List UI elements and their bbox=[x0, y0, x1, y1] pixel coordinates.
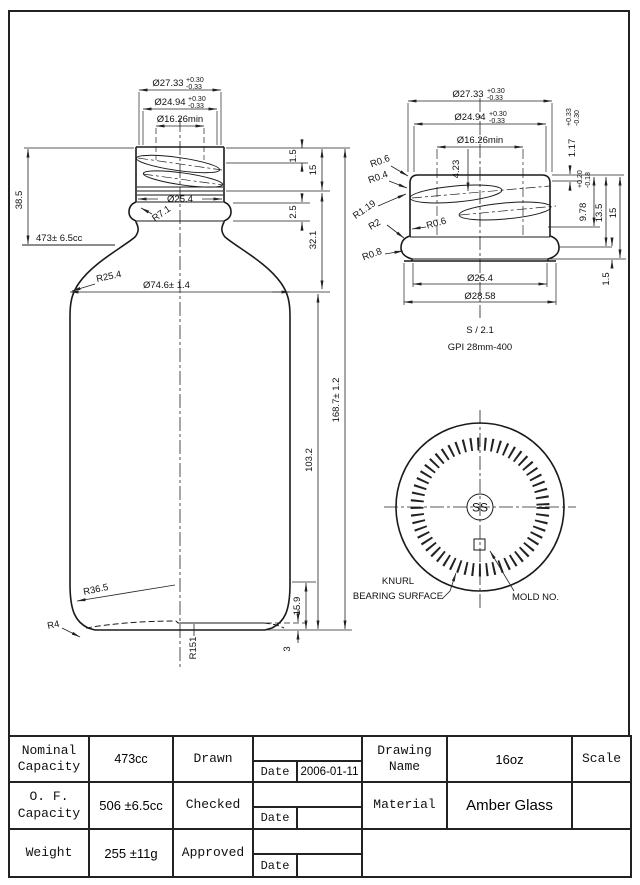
detail-thread-tol-plus: +0.30 bbox=[489, 111, 507, 118]
detail-dim-13-5: 13.5 bbox=[594, 204, 605, 223]
drawing-name-value: 16oz bbox=[448, 737, 573, 783]
nominal-capacity-value: 473cc bbox=[90, 737, 174, 783]
drawing-name-label: DrawingName bbox=[363, 737, 448, 783]
dim-base-radius: R4 bbox=[46, 619, 60, 632]
dim-neck-outer-tol-minus: -0.33 bbox=[186, 84, 202, 91]
title-block-empty-cell bbox=[363, 830, 630, 876]
approved-date-label: Date bbox=[254, 855, 298, 876]
dim-neck-dia: Ø25.4 bbox=[167, 194, 193, 205]
knurl-label-line2: BEARING SURFACE bbox=[353, 591, 443, 602]
detail-extension-lines bbox=[404, 103, 626, 305]
dim-103-2: 103.2 bbox=[304, 448, 315, 472]
detail-neck-dia: Ø25.4 bbox=[467, 273, 493, 284]
approved-date-value bbox=[298, 855, 361, 876]
drawn-signature-area bbox=[254, 737, 361, 762]
detail-bore-dia: Ø16.26min bbox=[457, 135, 503, 146]
mold-number-square bbox=[474, 539, 485, 550]
detail-radius-lip-outer: R0.6 bbox=[369, 153, 392, 170]
weight-label: Weight bbox=[10, 830, 90, 876]
checked-signature-cell: Date bbox=[254, 783, 363, 830]
detail-neck-outer-tol-minus: -0.33 bbox=[487, 95, 503, 102]
fill-level-label: 473± 6.5cc bbox=[36, 233, 83, 244]
dim-neck-outer-tol-plus: +0.30 bbox=[186, 77, 204, 84]
detail-radius-bead-groove: R0.6 bbox=[425, 216, 447, 232]
checked-date-label: Date bbox=[254, 808, 298, 828]
pushup-profile bbox=[86, 621, 284, 628]
detail-bead-dia: Ø28.58 bbox=[464, 291, 495, 302]
detail-neck-outer-dia: Ø27.33 bbox=[452, 89, 483, 100]
dim-thread-tol-minus: -0.33 bbox=[188, 103, 204, 110]
title-block: NominalCapacity 473cc Drawn Date 2006-01… bbox=[8, 735, 632, 878]
engineering-drawing: Ø27.33 +0.30 -0.33 Ø24.94 +0.30 -0.33 Ø1… bbox=[8, 10, 632, 735]
detail-radius-bead-bottom: R0.8 bbox=[361, 246, 384, 263]
dim-thread-dia: Ø24.94 bbox=[154, 97, 185, 108]
scale-value-cell bbox=[573, 783, 630, 830]
detail-thread-tol-minus: -0.33 bbox=[489, 118, 505, 125]
approved-label: Approved bbox=[174, 830, 254, 876]
dim-bore-dia: Ø16.26min bbox=[157, 114, 203, 125]
of-capacity-label: O. F.Capacity bbox=[10, 783, 90, 830]
detail-dim-4-23: 4.23 bbox=[451, 160, 462, 179]
neck-detail-view: Ø27.33 +0.30 -0.33 Ø24.94 +0.30 -0.33 Ø1… bbox=[351, 88, 626, 353]
detail-neck-outer-tol-plus: +0.30 bbox=[487, 88, 505, 95]
extension-lines bbox=[24, 92, 352, 630]
knurl-label-line1: KNURL bbox=[382, 576, 414, 587]
bottle-front-view: Ø27.33 +0.30 -0.33 Ø24.94 +0.30 -0.33 Ø1… bbox=[14, 77, 352, 668]
checked-date-value bbox=[298, 808, 361, 828]
detail-radius-bead-top: R2 bbox=[367, 217, 383, 233]
dim-pushup-radius: R151 bbox=[188, 637, 199, 660]
dim-1-5: 1.5 bbox=[288, 149, 299, 162]
material-value: Amber Glass bbox=[448, 783, 573, 830]
detail-dim-15: 15 bbox=[608, 208, 619, 219]
mold-number-label: MOLD NO. bbox=[512, 592, 559, 603]
detail-radius-lip-inner: R0.4 bbox=[367, 169, 390, 186]
knurl-leader bbox=[442, 573, 456, 599]
approved-signature-cell: Date bbox=[254, 830, 363, 876]
bottom-view: SS KNURL BEARING SURFACE MOLD NO. bbox=[353, 410, 576, 610]
drawn-signature-cell: Date 2006-01-11 bbox=[254, 737, 363, 783]
dim-2-5: 2.5 bbox=[288, 205, 299, 218]
detail-dim-1-17: 1.17 bbox=[567, 139, 578, 158]
detail-dim-9-78-tol-minus: -0.18 bbox=[585, 172, 592, 188]
dim-3: 3 bbox=[282, 646, 293, 651]
of-capacity-value: 506 ±6.5cc bbox=[90, 783, 174, 830]
checked-label: Checked bbox=[174, 783, 254, 830]
dim-32-1: 32.1 bbox=[308, 231, 319, 250]
detail-scale-note: S / 2.1 bbox=[466, 325, 493, 336]
approved-signature-area bbox=[254, 830, 361, 855]
dim-15: 15 bbox=[308, 165, 319, 176]
dim-neck-outer-dia: Ø27.33 bbox=[152, 78, 183, 89]
scale-label: Scale bbox=[573, 737, 630, 783]
dim-heel-radius: R36.5 bbox=[82, 582, 109, 598]
drawn-date-label: Date bbox=[254, 762, 298, 781]
dim-thread-tol-plus: +0.30 bbox=[188, 96, 206, 103]
drawn-label: Drawn bbox=[174, 737, 254, 783]
drawn-date-value: 2006-01-11 bbox=[298, 762, 361, 781]
weight-value: 255 ±11g bbox=[90, 830, 174, 876]
finish-spec-label: GPI 28mm-400 bbox=[448, 342, 512, 353]
drawing-sheet: Ø27.33 +0.30 -0.33 Ø24.94 +0.30 -0.33 Ø1… bbox=[0, 0, 640, 885]
nominal-capacity-label: NominalCapacity bbox=[10, 737, 90, 783]
checked-signature-area bbox=[254, 783, 361, 808]
thread-profile bbox=[136, 152, 224, 191]
detail-thread-profile bbox=[409, 182, 556, 223]
detail-thread-dia: Ø24.94 bbox=[454, 112, 485, 123]
dim-body-dia: Ø74.6± 1.4 bbox=[143, 280, 190, 291]
dim-15-9: 15.9 bbox=[292, 597, 303, 616]
detail-dim-9-78-tol-plus: +0.20 bbox=[577, 170, 584, 188]
detail-dim-1-5: 1.5 bbox=[601, 272, 612, 285]
ss-logo: SS bbox=[472, 501, 488, 515]
detail-dim-9-78: 9.78 bbox=[578, 203, 589, 222]
dim-overall-height: 168.7± 1.2 bbox=[331, 378, 342, 423]
detail-dim-1-17-tol-minus: -0.30 bbox=[574, 110, 581, 126]
dim-finish-height: 38.5 bbox=[14, 191, 25, 210]
detail-dim-1-17-tol-plus: +0.33 bbox=[566, 108, 573, 126]
material-label: Material bbox=[363, 783, 448, 830]
dim-shoulder-radius: R25.4 bbox=[95, 269, 122, 285]
